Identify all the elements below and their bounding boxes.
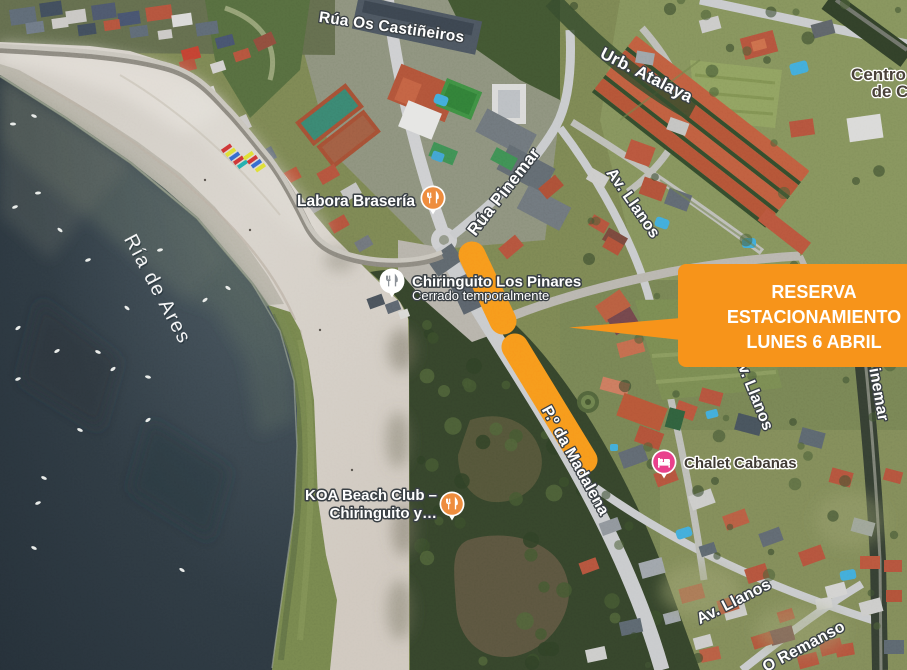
svg-text:RESERVA: RESERVA (771, 282, 856, 302)
svg-text:Labora Brasería: Labora Brasería (297, 193, 415, 210)
svg-text:de C: de C (872, 82, 907, 101)
svg-text:ESTACIONAMIENTO: ESTACIONAMIENTO (727, 307, 901, 327)
svg-text:Cerrado temporalmente: Cerrado temporalmente (412, 288, 549, 303)
svg-text:Chalet Cabanas: Chalet Cabanas (684, 455, 797, 472)
svg-text:LUNES 6 ABRIL: LUNES 6 ABRIL (746, 332, 881, 352)
svg-text:Chiringuito y…: Chiringuito y… (330, 505, 438, 522)
svg-text:KOA Beach Club –: KOA Beach Club – (305, 487, 437, 504)
